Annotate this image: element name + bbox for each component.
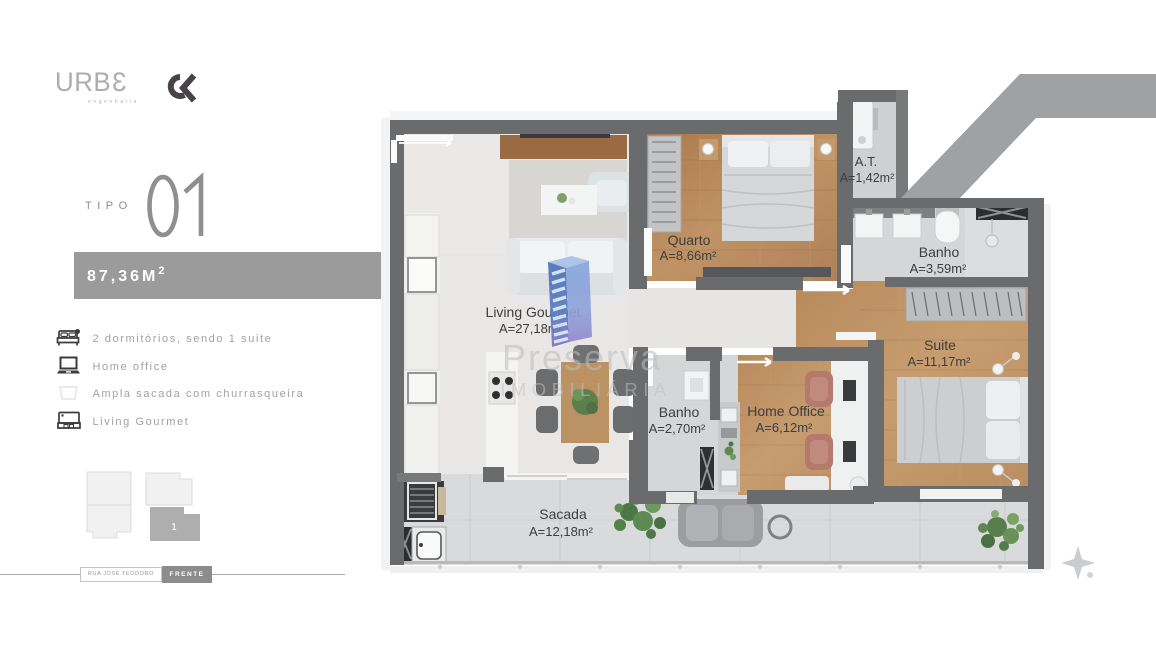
svg-text:Banho: Banho [659, 404, 700, 420]
svg-text:A=12,18m²: A=12,18m² [529, 524, 594, 539]
svg-text:IMOBILIÁRIA: IMOBILIÁRIA [500, 379, 672, 400]
svg-text:A=8,66m²: A=8,66m² [660, 248, 717, 263]
svg-text:Sacada: Sacada [539, 506, 587, 522]
svg-text:A.T.: A.T. [855, 154, 877, 169]
svg-text:A=6,12m²: A=6,12m² [756, 420, 813, 435]
svg-text:A=2,70m²: A=2,70m² [649, 421, 706, 436]
svg-text:Quarto: Quarto [668, 232, 711, 248]
svg-text:Suite: Suite [924, 337, 956, 353]
svg-text:A=3,59m²: A=3,59m² [910, 261, 967, 276]
svg-text:A=11,17m²: A=11,17m² [908, 354, 972, 369]
svg-text:A=1,42m²: A=1,42m² [840, 171, 895, 185]
svg-text:Preserva: Preserva [502, 337, 662, 378]
svg-text:Banho: Banho [919, 244, 960, 260]
svg-text:Home Office: Home Office [747, 403, 825, 419]
